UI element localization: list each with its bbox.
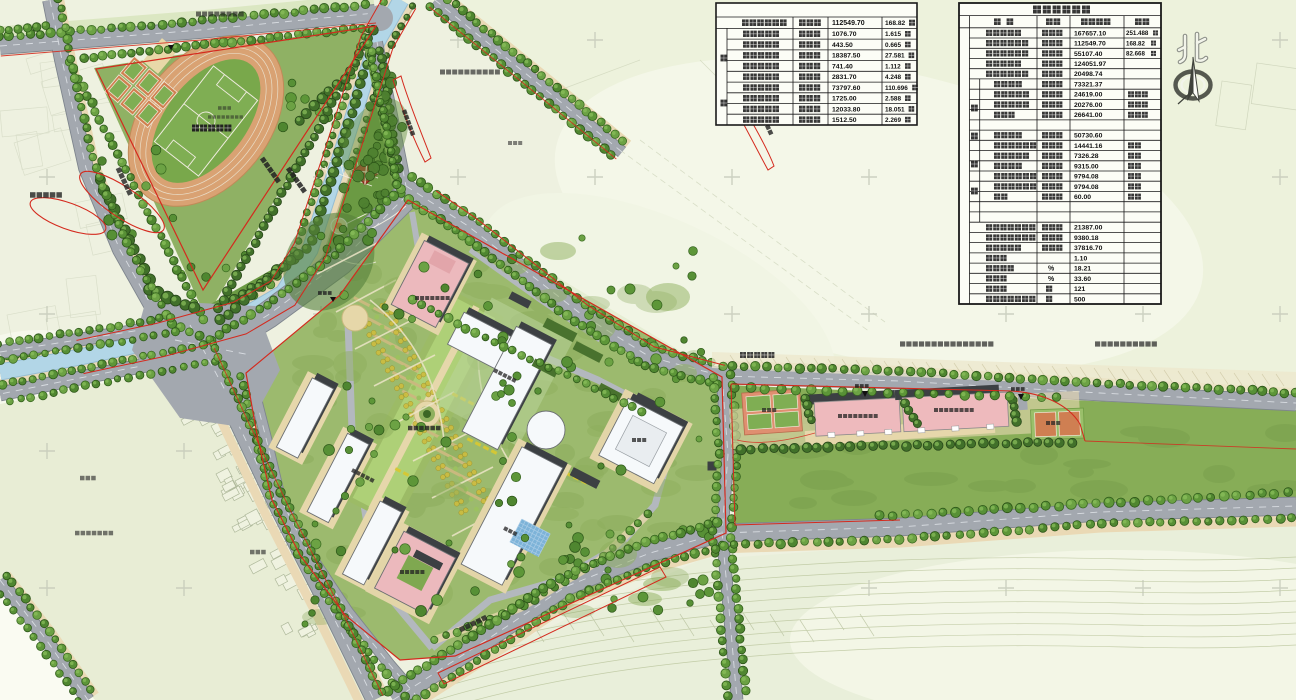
- svg-text:21387.00: 21387.00: [1074, 225, 1103, 232]
- svg-text:2.269: 2.269: [885, 117, 901, 124]
- svg-text:12033.80: 12033.80: [832, 106, 861, 113]
- svg-text:20276.00: 20276.00: [1074, 102, 1103, 109]
- svg-text:251.488: 251.488: [1126, 30, 1149, 37]
- svg-text:1512.50: 1512.50: [832, 117, 857, 124]
- svg-text:60.00: 60.00: [1074, 194, 1091, 201]
- svg-text:1.112: 1.112: [885, 63, 901, 70]
- svg-text:121: 121: [1074, 286, 1086, 293]
- svg-text:443.50: 443.50: [832, 42, 853, 49]
- svg-text:27.581: 27.581: [885, 53, 905, 60]
- svg-text:2831.70: 2831.70: [832, 74, 857, 81]
- svg-text:112549.70: 112549.70: [832, 20, 865, 27]
- svg-text:37816.70: 37816.70: [1074, 245, 1103, 252]
- svg-text:167657.10: 167657.10: [1074, 30, 1106, 37]
- svg-text:1076.70: 1076.70: [832, 31, 857, 38]
- svg-text:73321.37: 73321.37: [1074, 81, 1103, 88]
- svg-text:18.21: 18.21: [1074, 266, 1091, 273]
- svg-text:1725.00: 1725.00: [832, 96, 857, 103]
- svg-text:0.665: 0.665: [885, 42, 901, 49]
- svg-text:20498.74: 20498.74: [1074, 71, 1103, 78]
- svg-text:4.248: 4.248: [885, 74, 901, 81]
- svg-text:33.60: 33.60: [1074, 276, 1091, 283]
- svg-text:26641.00: 26641.00: [1074, 112, 1103, 119]
- svg-text:1.615: 1.615: [885, 31, 901, 38]
- svg-text:7326.28: 7326.28: [1074, 153, 1099, 160]
- svg-text:55107.40: 55107.40: [1074, 51, 1103, 58]
- svg-text:50730.60: 50730.60: [1074, 133, 1103, 140]
- svg-text:9794.08: 9794.08: [1074, 184, 1099, 191]
- svg-text:112549.70: 112549.70: [1074, 41, 1106, 48]
- svg-text:168.82: 168.82: [1126, 40, 1145, 47]
- svg-text:110.696: 110.696: [885, 85, 908, 92]
- svg-text:82.668: 82.668: [1126, 51, 1145, 58]
- svg-text:168.82: 168.82: [885, 20, 906, 27]
- svg-text:741.40: 741.40: [832, 63, 853, 70]
- svg-text:%: %: [1048, 276, 1055, 283]
- svg-text:18.051: 18.051: [885, 106, 905, 113]
- svg-text:%: %: [1048, 266, 1055, 273]
- svg-text:73797.60: 73797.60: [832, 85, 861, 92]
- svg-text:14441.16: 14441.16: [1074, 143, 1103, 150]
- svg-text:9794.08: 9794.08: [1074, 174, 1099, 181]
- svg-text:9315.00: 9315.00: [1074, 163, 1099, 170]
- svg-text:9380.18: 9380.18: [1074, 235, 1099, 242]
- svg-text:18387.50: 18387.50: [832, 53, 861, 60]
- svg-text:1.10: 1.10: [1074, 255, 1087, 262]
- svg-text:2.588: 2.588: [885, 96, 901, 103]
- svg-text:500: 500: [1074, 296, 1086, 303]
- svg-text:24619.00: 24619.00: [1074, 92, 1103, 99]
- svg-text:124051.97: 124051.97: [1074, 61, 1106, 68]
